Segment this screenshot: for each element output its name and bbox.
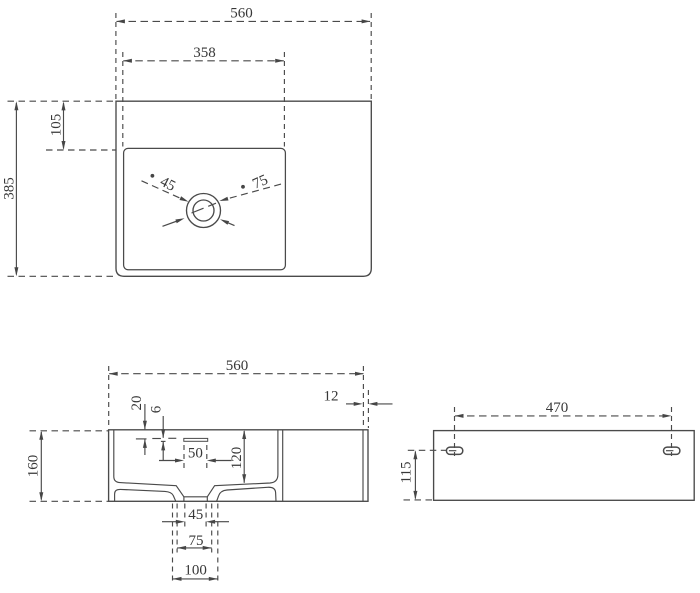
svg-text:20: 20 xyxy=(129,396,145,411)
svg-text:50: 50 xyxy=(188,445,203,461)
svg-text:115: 115 xyxy=(398,462,414,484)
svg-text:45: 45 xyxy=(157,174,178,195)
svg-text:120: 120 xyxy=(229,447,245,470)
svg-text:6: 6 xyxy=(148,405,164,413)
svg-text:358: 358 xyxy=(193,45,216,61)
svg-text:160: 160 xyxy=(26,455,42,478)
svg-text:560: 560 xyxy=(226,358,249,374)
svg-text:45: 45 xyxy=(188,507,203,523)
svg-text:105: 105 xyxy=(48,114,64,137)
svg-text:560: 560 xyxy=(230,6,253,22)
svg-text:75: 75 xyxy=(189,533,204,549)
svg-text:385: 385 xyxy=(2,177,18,200)
svg-text:12: 12 xyxy=(324,389,339,405)
svg-text:470: 470 xyxy=(546,400,569,416)
svg-text:100: 100 xyxy=(184,563,207,579)
svg-text:75: 75 xyxy=(250,172,270,193)
